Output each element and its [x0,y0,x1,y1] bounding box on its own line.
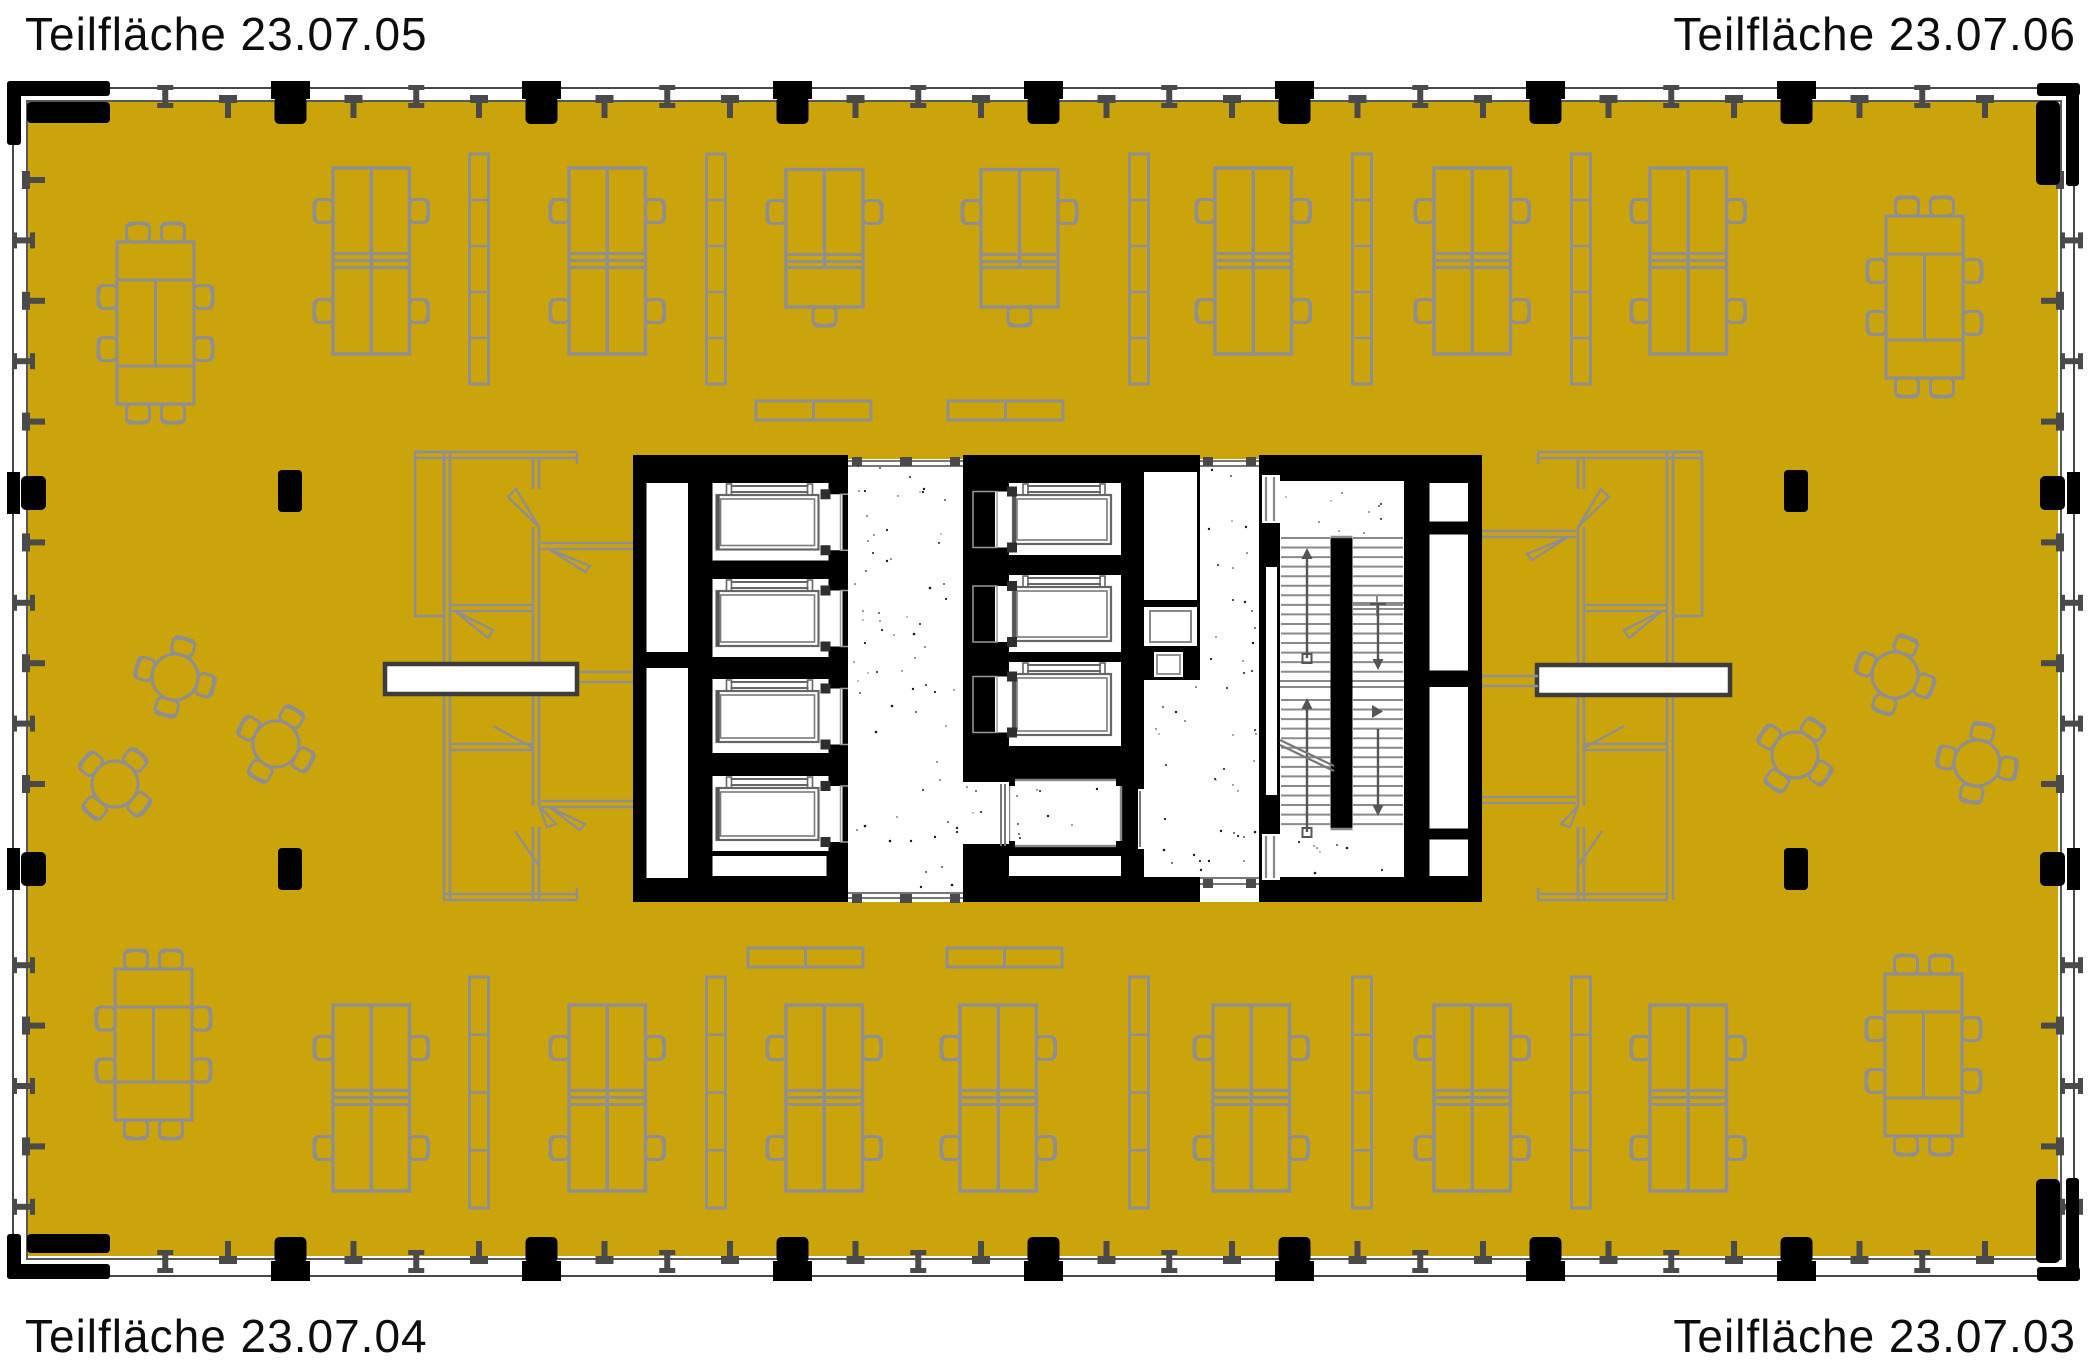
svg-text:Teilfläche 23.07.06: Teilfläche 23.07.06 [1673,8,2076,60]
svg-text:Teilfläche 23.07.05: Teilfläche 23.07.05 [25,8,428,60]
svg-text:Teilfläche 23.07.04: Teilfläche 23.07.04 [25,1310,428,1361]
svg-text:Teilfläche 23.07.03: Teilfläche 23.07.03 [1673,1310,2076,1361]
